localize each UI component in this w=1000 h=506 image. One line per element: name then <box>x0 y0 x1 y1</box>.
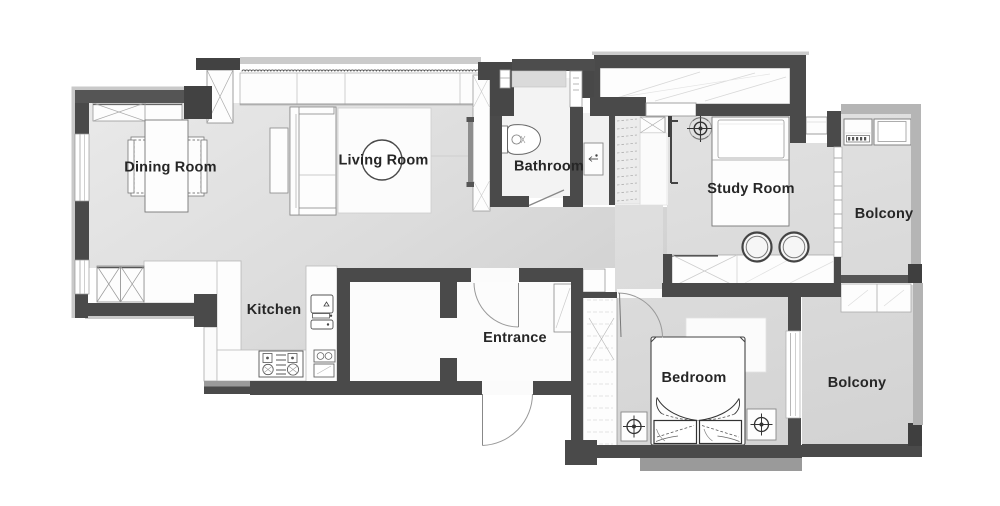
svg-text:Study Room: Study Room <box>707 181 794 197</box>
svg-text:Bolcony: Bolcony <box>855 206 914 222</box>
svg-text:Bedroom: Bedroom <box>661 370 726 386</box>
svg-text:Bolcony: Bolcony <box>828 375 887 391</box>
svg-text:Dining Room: Dining Room <box>124 160 216 176</box>
svg-text:Bathroom: Bathroom <box>514 159 584 175</box>
svg-text:Entrance: Entrance <box>483 330 547 346</box>
svg-text:Living Room: Living Room <box>338 153 428 169</box>
svg-text:Kitchen: Kitchen <box>247 302 302 318</box>
